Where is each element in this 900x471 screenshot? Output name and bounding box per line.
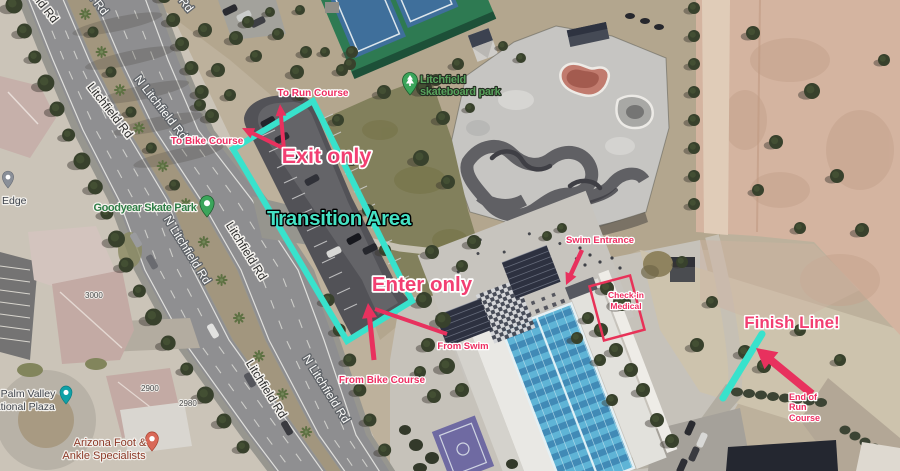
svg-text:Ankle Specialists: Ankle Specialists bbox=[62, 450, 146, 462]
svg-text:Check-in: Check-in bbox=[608, 290, 644, 300]
svg-text:To Run Course: To Run Course bbox=[278, 88, 349, 99]
svg-text:Palm Valley: Palm Valley bbox=[1, 388, 56, 400]
svg-text:Finish Line!: Finish Line! bbox=[744, 313, 839, 332]
svg-text:From Swim: From Swim bbox=[437, 341, 488, 352]
svg-text:Enter only: Enter only bbox=[372, 273, 473, 296]
svg-text:Edge: Edge bbox=[2, 195, 27, 207]
svg-text:Exit only: Exit only bbox=[282, 144, 372, 168]
svg-text:To Bike Course: To Bike Course bbox=[171, 136, 244, 147]
svg-text:Medical: Medical bbox=[610, 301, 641, 311]
svg-text:2900: 2900 bbox=[141, 384, 159, 393]
svg-text:skateboard park: skateboard park bbox=[420, 86, 502, 98]
svg-text:Transition Area: Transition Area bbox=[267, 207, 412, 230]
svg-text:Swim Entrance: Swim Entrance bbox=[566, 235, 634, 246]
svg-text:End of: End of bbox=[789, 392, 818, 402]
svg-text:From Bike Course: From Bike Course bbox=[339, 375, 426, 386]
svg-text:3000: 3000 bbox=[85, 291, 103, 300]
svg-text:2980: 2980 bbox=[179, 399, 197, 408]
svg-text:Course: Course bbox=[789, 413, 820, 423]
svg-text:National Plaza: National Plaza bbox=[0, 401, 55, 413]
svg-text:Goodyear Skate Park: Goodyear Skate Park bbox=[93, 202, 197, 214]
svg-text:Arizona Foot &: Arizona Foot & bbox=[74, 437, 147, 449]
svg-text:Litchfield: Litchfield bbox=[420, 74, 466, 86]
svg-text:Run: Run bbox=[789, 402, 807, 412]
